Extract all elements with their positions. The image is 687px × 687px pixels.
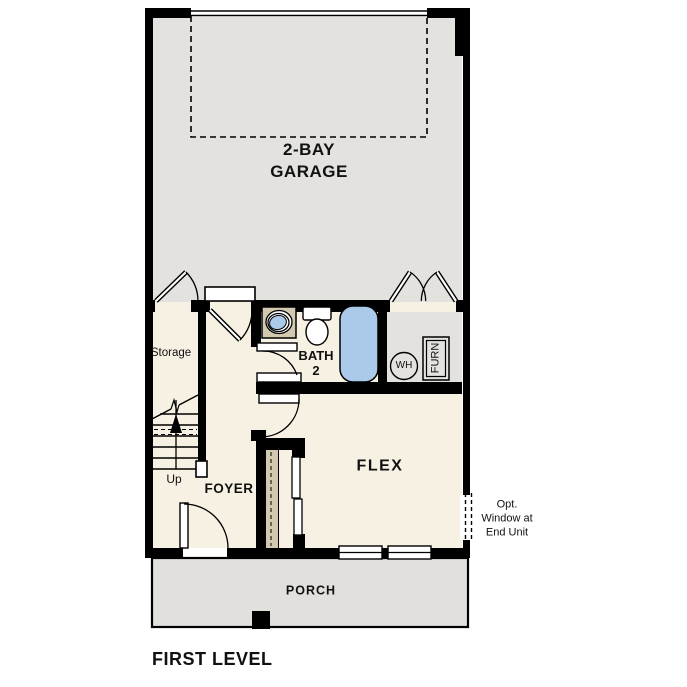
flex-west-window — [292, 457, 302, 535]
bath-flex-wall — [256, 382, 462, 394]
garage-label: 2-BAY GARAGE — [270, 139, 348, 183]
south-wall-3 — [382, 548, 388, 558]
stair-rail-cap — [196, 461, 207, 477]
furnace-label: FURN — [429, 343, 442, 374]
page-title: FIRST LEVEL — [152, 649, 273, 670]
garage-entry-stoop — [205, 287, 255, 301]
north-wall-left — [145, 8, 191, 18]
bathtub — [340, 306, 378, 382]
flex-wall-stub-upper — [292, 438, 305, 458]
foyer-label: FOYER — [204, 481, 253, 497]
closet-strip — [266, 450, 278, 548]
sink-vanity — [262, 307, 296, 338]
east-wall-upper — [463, 18, 470, 496]
bath-west-wall — [251, 302, 261, 347]
floor-plan-canvas: 2-BAY GARAGE Storage BATH 2 WH FURN Up F… — [0, 0, 687, 687]
porch-label: PORCH — [286, 584, 336, 599]
garage-sep-wall-3 — [456, 300, 470, 312]
south-wall-4 — [431, 548, 470, 558]
floor-plan-drawing — [0, 0, 687, 687]
bath-label: BATH 2 — [298, 349, 333, 379]
flex-south-window-2 — [388, 546, 431, 559]
tub-closet-wall — [378, 300, 387, 382]
foyer-closet — [266, 450, 279, 548]
flex-south-window-1 — [339, 546, 382, 559]
west-wall — [145, 8, 153, 558]
optional-end-unit-window — [460, 493, 475, 542]
optional-window-note: Opt. Window at End Unit — [481, 498, 532, 539]
south-wall-1 — [145, 548, 183, 558]
south-wall-2 — [227, 548, 339, 558]
storage-label: Storage — [151, 347, 191, 361]
porch-post — [252, 611, 270, 629]
stair-wall — [198, 302, 206, 462]
foyer-closet-west-wall — [256, 430, 266, 548]
flex-label: FLEX — [357, 456, 404, 475]
stairs-up-label: Up — [166, 472, 181, 486]
water-heater-label: WH — [396, 360, 413, 372]
flex-wall-stub-lower — [293, 534, 305, 552]
toilet — [303, 307, 331, 345]
